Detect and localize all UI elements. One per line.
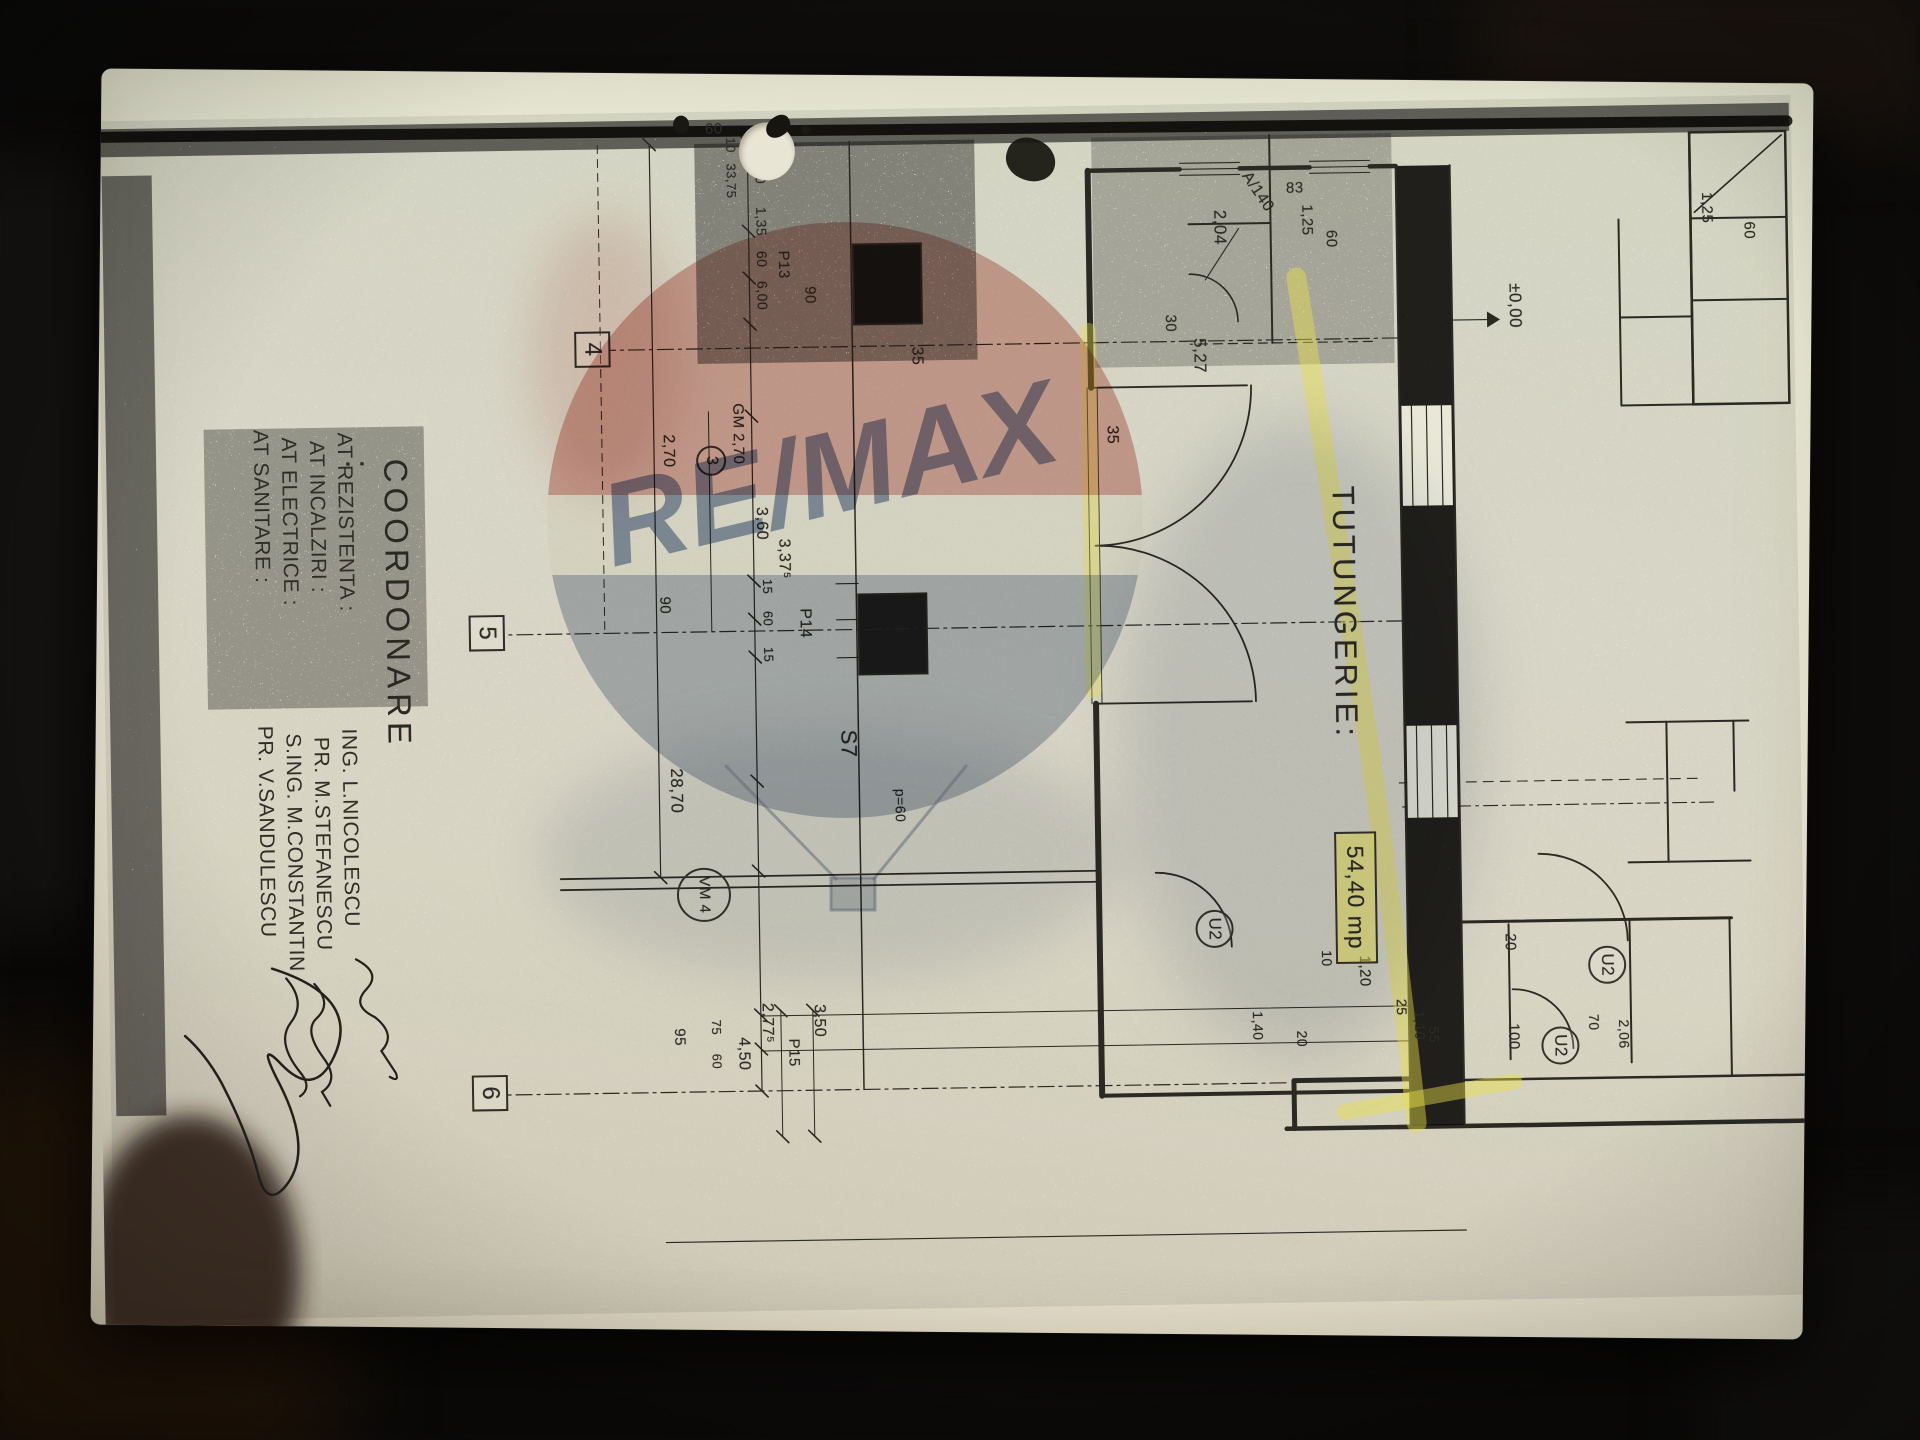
dimension-label: 60 [710,1054,724,1070]
table-shadow [0,160,100,920]
discipline-label: AT REZISTENTA : [333,432,359,612]
dimension-label: 15 [761,647,775,663]
dimension-label: 33,75 [724,163,738,198]
dimension-label: 90 [657,596,673,614]
dimension-label: 35 [908,346,925,365]
dimension-label: 4,50 [734,1037,751,1070]
dimension-label: 70 [1586,1014,1601,1031]
coordination-entry: AT ELECTRICE : S.ING. M.CONSTANTIN [276,437,303,606]
grid-marker: 5 [469,615,506,652]
dimension-label: 28,70 [667,768,686,813]
dimension-label: P14 [796,608,813,638]
dimension-label: 1,10 [1412,1011,1427,1040]
discipline-label: AT ELECTRICE : [277,437,303,606]
dimension-label: 60 [1323,230,1339,248]
level-marker: ±0,00 [1506,283,1525,328]
dimension-label: 10 [1319,950,1334,967]
dimension-label: 60 [761,611,775,627]
floor-plan-document: 601,25831,2560A/1402,045,2730±0,002,0670… [91,69,1814,1340]
dimension-label: 1,25 [1698,192,1714,223]
dimension-label: 100 [1505,1023,1521,1050]
dimension-label: P13 [775,250,791,278]
dimension-label: 2,70 [659,434,676,467]
dimension-label: 60 [1741,221,1757,239]
dimension-label: p=60 [893,789,908,823]
discipline-label: AT INCALZIRI : [305,441,330,594]
dimension-label: 1,25 [1298,204,1314,235]
section-label: S7 [837,729,861,757]
discipline-label: AT SANITARE : [249,430,274,584]
paper-sheet: 601,25831,2560A/1402,045,2730±0,002,0670… [91,69,1814,1340]
dimension-label: 10 [723,137,737,153]
dimension-label: 2,77⁵ [758,1003,775,1044]
room-name: TUTUNGERIE: [1326,486,1363,741]
dimension-label: 5,27 [1190,338,1208,373]
ink-blob [673,116,689,134]
room-area: 54,40 mp [1334,831,1378,964]
engineer-name: PR. V.SANDULESCU [252,726,279,938]
engineer-name: ING. L.NICOLESCU [336,728,363,927]
dimension-label: 55 [1426,1026,1441,1043]
engineer-name: S.ING. M.CONSTANTIN [280,733,308,972]
dimension-label: 3,60 [752,507,769,540]
dimension-label: 1,40 [1250,1011,1265,1040]
dimension-label: 30 [1162,314,1178,332]
coordination-entry: AT REZISTENTA : ING. L.NICOLESCU [332,432,359,612]
dimension-label: 6,00 [755,281,770,310]
dimension-label: 90 [802,286,818,304]
dimension-label: GM 2,70 [730,403,747,464]
dimension-label: 1,35 [753,207,768,236]
dimension-label: 60 [705,122,723,138]
dimension-label: P15 [785,1038,801,1066]
coordination-entry: AT SANITARE : PR. V.SANDULESCU [248,430,274,584]
dimension-label: 2,04 [1210,210,1228,245]
dimension-label: 20 [1502,933,1518,951]
dimension-label: 83 [1286,180,1304,196]
dimension-label: 3,50 [810,1004,827,1037]
grid-marker: 6 [472,1075,509,1112]
dimension-label: 60 [754,251,769,268]
dimension-label: 35 [1103,425,1120,444]
photo-scene: 601,25831,2560A/1402,045,2730±0,002,0670… [0,0,1920,1440]
dimension-label: 3,37⁵ [775,539,792,580]
dimension-label: 25 [1394,999,1409,1016]
engineer-name: PR. M.STEFANESCU [308,737,335,951]
dimension-label: 20 [1294,1030,1309,1047]
ink-blob [801,125,811,135]
paper-hole [739,122,796,180]
dimension-label: 15 [760,579,774,595]
dimension-label: 2,06 [1616,1019,1631,1048]
coordination-entry: AT INCALZIRI : PR. M.STEFANESCU [304,441,330,594]
dimension-label: 95 [671,1028,687,1046]
dimension-label: 75 [709,1020,723,1036]
grid-marker: 4 [574,331,611,368]
